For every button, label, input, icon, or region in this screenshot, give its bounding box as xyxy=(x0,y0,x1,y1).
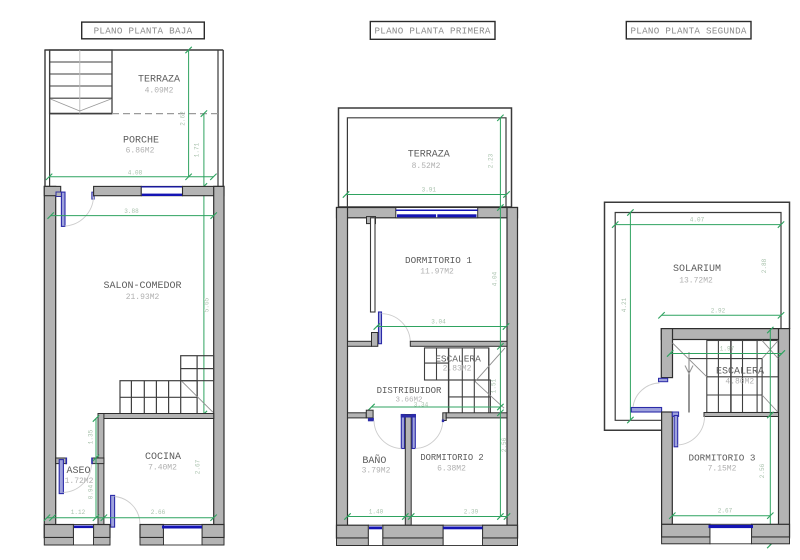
svg-text:2.66: 2.66 xyxy=(151,509,166,516)
svg-text:1.97: 1.97 xyxy=(720,346,735,353)
svg-text:TERRAZA: TERRAZA xyxy=(408,150,450,161)
svg-text:13.72M2: 13.72M2 xyxy=(679,277,713,286)
svg-text:3.04: 3.04 xyxy=(431,318,446,325)
svg-text:DORMITORIO 3: DORMITORIO 3 xyxy=(689,453,756,464)
svg-text:0.94: 0.94 xyxy=(88,484,95,499)
svg-text:SOLARIUM: SOLARIUM xyxy=(673,264,721,275)
svg-text:3.88: 3.88 xyxy=(124,208,139,215)
svg-text:6.86M2: 6.86M2 xyxy=(126,147,155,156)
svg-text:ASEO: ASEO xyxy=(66,466,90,477)
svg-text:7.15M2: 7.15M2 xyxy=(708,465,737,474)
svg-text:1.40: 1.40 xyxy=(369,509,384,516)
svg-text:PLANO PLANTA BAJA: PLANO PLANTA BAJA xyxy=(94,26,193,37)
svg-text:4.04: 4.04 xyxy=(492,271,499,286)
svg-text:2.88: 2.88 xyxy=(761,258,768,273)
svg-text:4.09M2: 4.09M2 xyxy=(145,87,174,96)
svg-text:PLANO PLANTA PRIMERA: PLANO PLANTA PRIMERA xyxy=(374,26,490,37)
svg-text:1.71: 1.71 xyxy=(194,142,201,157)
svg-text:2.62: 2.62 xyxy=(180,111,187,126)
svg-text:2.23: 2.23 xyxy=(488,153,495,168)
svg-text:ESCALERA: ESCALERA xyxy=(435,354,481,365)
svg-text:1.72M2: 1.72M2 xyxy=(65,477,94,486)
svg-text:1.51: 1.51 xyxy=(491,378,498,393)
svg-text:DORMITORIO 1: DORMITORIO 1 xyxy=(405,255,472,266)
svg-text:PORCHE: PORCHE xyxy=(123,136,159,147)
svg-text:2.39: 2.39 xyxy=(464,509,479,516)
svg-text:8.52M2: 8.52M2 xyxy=(412,162,441,171)
svg-text:4.07: 4.07 xyxy=(690,217,705,224)
svg-text:DISTRIBUIDOR: DISTRIBUIDOR xyxy=(377,386,442,396)
svg-text:DORMITORIO 2: DORMITORIO 2 xyxy=(420,453,483,463)
svg-text:1.35: 1.35 xyxy=(88,429,95,444)
svg-text:SALON-COMEDOR: SALON-COMEDOR xyxy=(103,281,181,292)
svg-text:1.12: 1.12 xyxy=(71,509,86,516)
svg-text:2.83M2: 2.83M2 xyxy=(443,365,472,374)
svg-text:4.08: 4.08 xyxy=(128,170,143,177)
svg-text:ESCALERA: ESCALERA xyxy=(716,367,764,378)
svg-text:3.91: 3.91 xyxy=(422,187,437,194)
svg-text:2.56: 2.56 xyxy=(759,463,766,478)
svg-text:4.21: 4.21 xyxy=(621,297,628,312)
svg-text:BAÑO: BAÑO xyxy=(362,454,386,467)
svg-text:2.67: 2.67 xyxy=(195,459,202,474)
svg-text:TERRAZA: TERRAZA xyxy=(138,75,180,86)
svg-text:2.92: 2.92 xyxy=(711,307,726,314)
svg-text:11.97M2: 11.97M2 xyxy=(420,268,454,277)
svg-text:3.34: 3.34 xyxy=(414,401,429,408)
svg-text:2.67: 2.67 xyxy=(718,508,733,515)
svg-text:21.93M2: 21.93M2 xyxy=(126,293,160,302)
svg-text:PLANO PLANTA SEGUNDA: PLANO PLANTA SEGUNDA xyxy=(630,25,746,36)
svg-text:6.38M2: 6.38M2 xyxy=(437,465,466,474)
svg-text:3.79M2: 3.79M2 xyxy=(362,467,391,476)
svg-text:2.56: 2.56 xyxy=(501,437,508,452)
svg-text:4.80M2: 4.80M2 xyxy=(725,378,754,387)
svg-text:COCINA: COCINA xyxy=(145,452,181,463)
svg-text:5.65: 5.65 xyxy=(204,297,211,312)
svg-text:7.40M2: 7.40M2 xyxy=(148,464,177,473)
